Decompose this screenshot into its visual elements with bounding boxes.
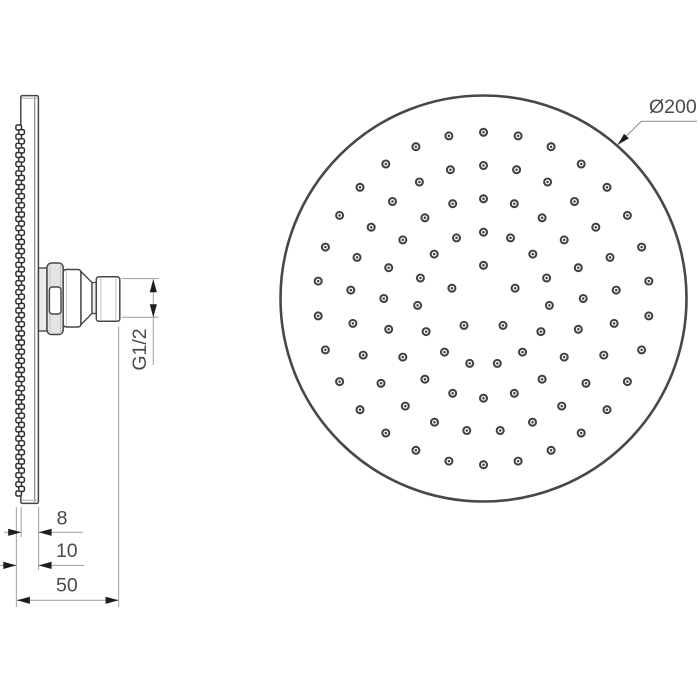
svg-text:Ø200: Ø200	[649, 96, 697, 118]
svg-text:10: 10	[56, 540, 78, 562]
svg-text:8: 8	[57, 508, 68, 530]
svg-text:50: 50	[56, 575, 78, 597]
svg-text:G1/2: G1/2	[129, 328, 151, 370]
